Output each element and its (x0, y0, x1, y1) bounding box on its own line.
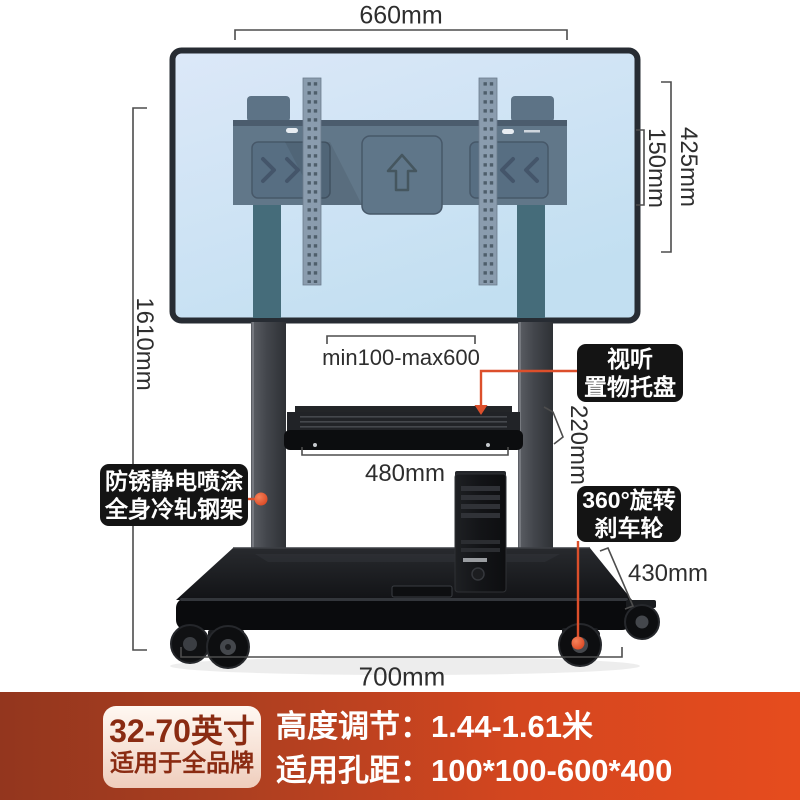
pc-tower (455, 471, 506, 592)
dimension-total-height: 1610mm (130, 297, 158, 390)
center-panel (362, 136, 442, 214)
callout-av-tray: 视听 置物托盘 (577, 344, 683, 402)
callout-brake-wheels-line1: 360°旋转 (582, 486, 676, 514)
dim-line-660 (235, 30, 567, 40)
storage-tray (284, 406, 523, 450)
pole-through-screen-left (253, 205, 281, 318)
dimension-tray-drop: 220mm (564, 405, 592, 485)
brand-fit-text: 适用于全品牌 (110, 749, 254, 779)
callout-brake-wheels: 360°旋转 刹车轮 (577, 486, 681, 542)
dimension-plate-height: 425mm (674, 127, 702, 207)
dim-line-vesa-range (327, 336, 475, 344)
frame-pointer-dot (255, 493, 268, 506)
promo-banner: 32-70英寸 适用于全品牌 高度调节：1.44-1.61米 适用孔距：100*… (0, 692, 800, 800)
base-platform (176, 548, 632, 630)
wheel-pointer-dot (572, 637, 585, 650)
vesa-rail-left (303, 78, 321, 285)
callout-av-tray-line1: 视听 (607, 345, 653, 373)
dimension-vesa-range: min100-max600 (322, 345, 480, 371)
product-image: 660mm 425mm 150mm 1610mm min100-max600 2… (0, 0, 800, 800)
callout-steel-frame-line1: 防锈静电喷涂 (105, 467, 243, 495)
vesa-rail-right (479, 78, 497, 285)
crossbar-slot-left (286, 128, 298, 133)
callout-av-tray-line2: 置物托盘 (584, 373, 676, 401)
dimension-plate-inner-height: 150mm (642, 128, 670, 208)
caster-wheel-front-left (207, 626, 249, 668)
callout-brake-wheels-line2: 刹车轮 (595, 514, 664, 542)
base-handle-recess (392, 586, 452, 597)
pole-through-screen-right (517, 205, 545, 318)
dimension-top-width: 660mm (359, 2, 442, 31)
size-range-text: 32-70英寸 (109, 715, 255, 749)
vesa-pitch-text: 适用孔距：100*100-600*400 (276, 745, 672, 790)
crossbar-slot-right (502, 129, 514, 134)
dimension-base-depth: 430mm (628, 560, 708, 588)
height-adjustment-text: 高度调节：1.44-1.61米 (276, 701, 593, 746)
callout-steel-frame-line2: 全身冷轧钢架 (105, 495, 243, 523)
tv-display (173, 51, 638, 321)
size-range-card: 32-70英寸 适用于全品牌 (103, 706, 261, 788)
dimension-tray-width: 480mm (365, 460, 445, 488)
crossbar-top-block-left (247, 96, 290, 122)
callout-steel-frame: 防锈静电喷涂 全身冷轧钢架 (100, 464, 248, 526)
caster-wheel-rear-right (625, 600, 659, 639)
crossbar-top-block-right (511, 96, 554, 122)
dimension-base-width: 700mm (359, 662, 446, 693)
